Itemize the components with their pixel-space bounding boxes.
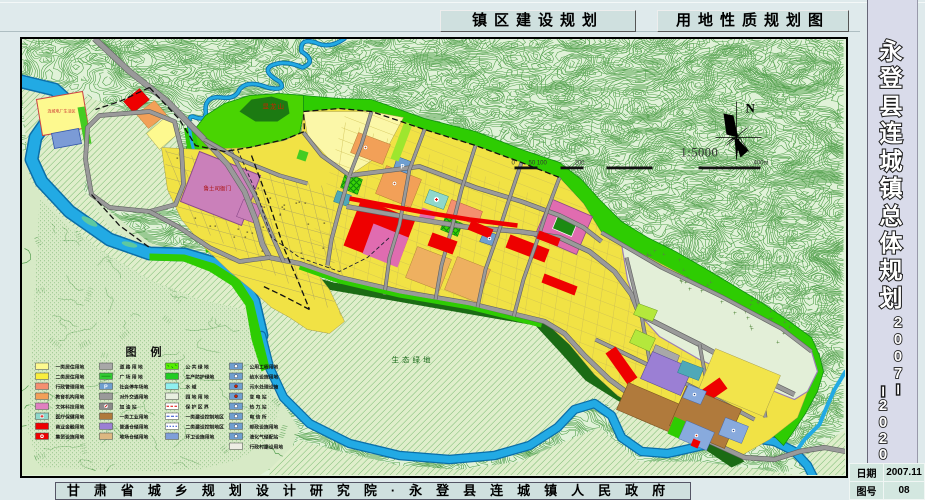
svg-text:对外交通用地: 对外交通用地 <box>120 393 149 400</box>
svg-text:P: P <box>104 385 108 391</box>
svg-text:2: 2 <box>894 314 902 331</box>
svg-text:2: 2 <box>879 397 887 414</box>
svg-text:0: 0 <box>894 331 902 348</box>
svg-text:文体科技用地: 文体科技用地 <box>56 403 85 410</box>
svg-text:2: 2 <box>879 430 887 447</box>
svg-text:生产防护绿地: 生产防护绿地 <box>186 373 215 380</box>
svg-text:公 共 绿 地: 公 共 绿 地 <box>186 363 209 370</box>
svg-text:7: 7 <box>894 365 902 382</box>
svg-text:显龙山: 显龙山 <box>263 102 286 111</box>
svg-text:二类建设控制地区: 二类建设控制地区 <box>186 423 225 430</box>
svg-text:园 地 用 地: 园 地 用 地 <box>186 393 209 400</box>
svg-text:一类建设控制地区: 一类建设控制地区 <box>186 413 225 420</box>
svg-text:1:5000: 1:5000 <box>681 146 719 160</box>
svg-text:行政村建设用地: 行政村建设用地 <box>249 443 284 450</box>
svg-text:连城电厂生活区: 连城电厂生活区 <box>48 108 76 114</box>
svg-text:行政管理用地: 行政管理用地 <box>55 383 85 390</box>
svg-text:0: 0 <box>894 348 902 365</box>
svg-text:给水设施用地: 给水设施用地 <box>250 373 279 380</box>
svg-text:电 信 所: 电 信 所 <box>250 413 267 420</box>
svg-text:200: 200 <box>575 161 586 167</box>
svg-text:P: P <box>401 165 405 171</box>
svg-text:0: 0 <box>879 446 887 463</box>
svg-text:规: 规 <box>880 257 903 283</box>
svg-text:公用工程用地: 公用工程用地 <box>250 363 279 370</box>
svg-text:永: 永 <box>880 38 903 64</box>
svg-text:邮政设施用地: 邮政设施用地 <box>250 423 279 430</box>
svg-text:广 场 用 地: 广 场 用 地 <box>120 373 143 380</box>
svg-text:登: 登 <box>879 65 904 91</box>
svg-text:液化气储配站: 液化气储配站 <box>250 433 279 440</box>
svg-text:保 护 区 界: 保 护 区 界 <box>185 403 209 410</box>
svg-text:图例: 图例 <box>126 345 176 359</box>
svg-text:鲁土司衙门: 鲁土司衙门 <box>204 185 232 193</box>
svg-text:总: 总 <box>880 203 903 229</box>
svg-text:一类工业用地: 一类工业用地 <box>120 413 149 420</box>
svg-text:社会停车场地: 社会停车场地 <box>119 383 149 390</box>
svg-text:一类居住用地: 一类居住用地 <box>56 363 85 370</box>
svg-text:50 100: 50 100 <box>529 161 548 167</box>
svg-text:镇: 镇 <box>880 175 903 201</box>
svg-text:商业金融用地: 商业金融用地 <box>56 423 85 430</box>
svg-text:医疗保健用地: 医疗保健用地 <box>56 413 85 420</box>
svg-text:400m: 400m <box>754 161 769 167</box>
svg-text:污水处理设施: 污水处理设施 <box>250 383 279 390</box>
svg-text:体: 体 <box>880 230 904 256</box>
svg-text:城: 城 <box>880 148 903 174</box>
svg-text:连: 连 <box>880 120 904 146</box>
svg-text:变 电 站: 变 电 站 <box>250 393 267 400</box>
svg-text:堆场仓储用地: 堆场仓储用地 <box>120 433 149 440</box>
svg-text:划: 划 <box>880 285 903 311</box>
svg-text:二类居住用地: 二类居住用地 <box>56 373 85 380</box>
svg-text:生态绿地: 生态绿地 <box>392 355 434 365</box>
svg-text:教育机构用地: 教育机构用地 <box>55 393 85 400</box>
svg-text:加 油 站: 加 油 站 <box>119 403 137 410</box>
svg-text:N: N <box>746 101 756 116</box>
svg-text:道 路 用 地: 道 路 用 地 <box>120 363 143 370</box>
svg-text:普通仓储用地: 普通仓储用地 <box>120 423 149 430</box>
svg-text:0: 0 <box>879 414 887 431</box>
svg-text:县: 县 <box>880 93 903 119</box>
svg-text:环卫设施用地: 环卫设施用地 <box>186 433 215 440</box>
svg-text:集贸设施用地: 集贸设施用地 <box>55 433 85 440</box>
svg-text:热 力 站: 热 力 站 <box>250 403 267 410</box>
svg-text:水 域: 水 域 <box>185 383 197 390</box>
